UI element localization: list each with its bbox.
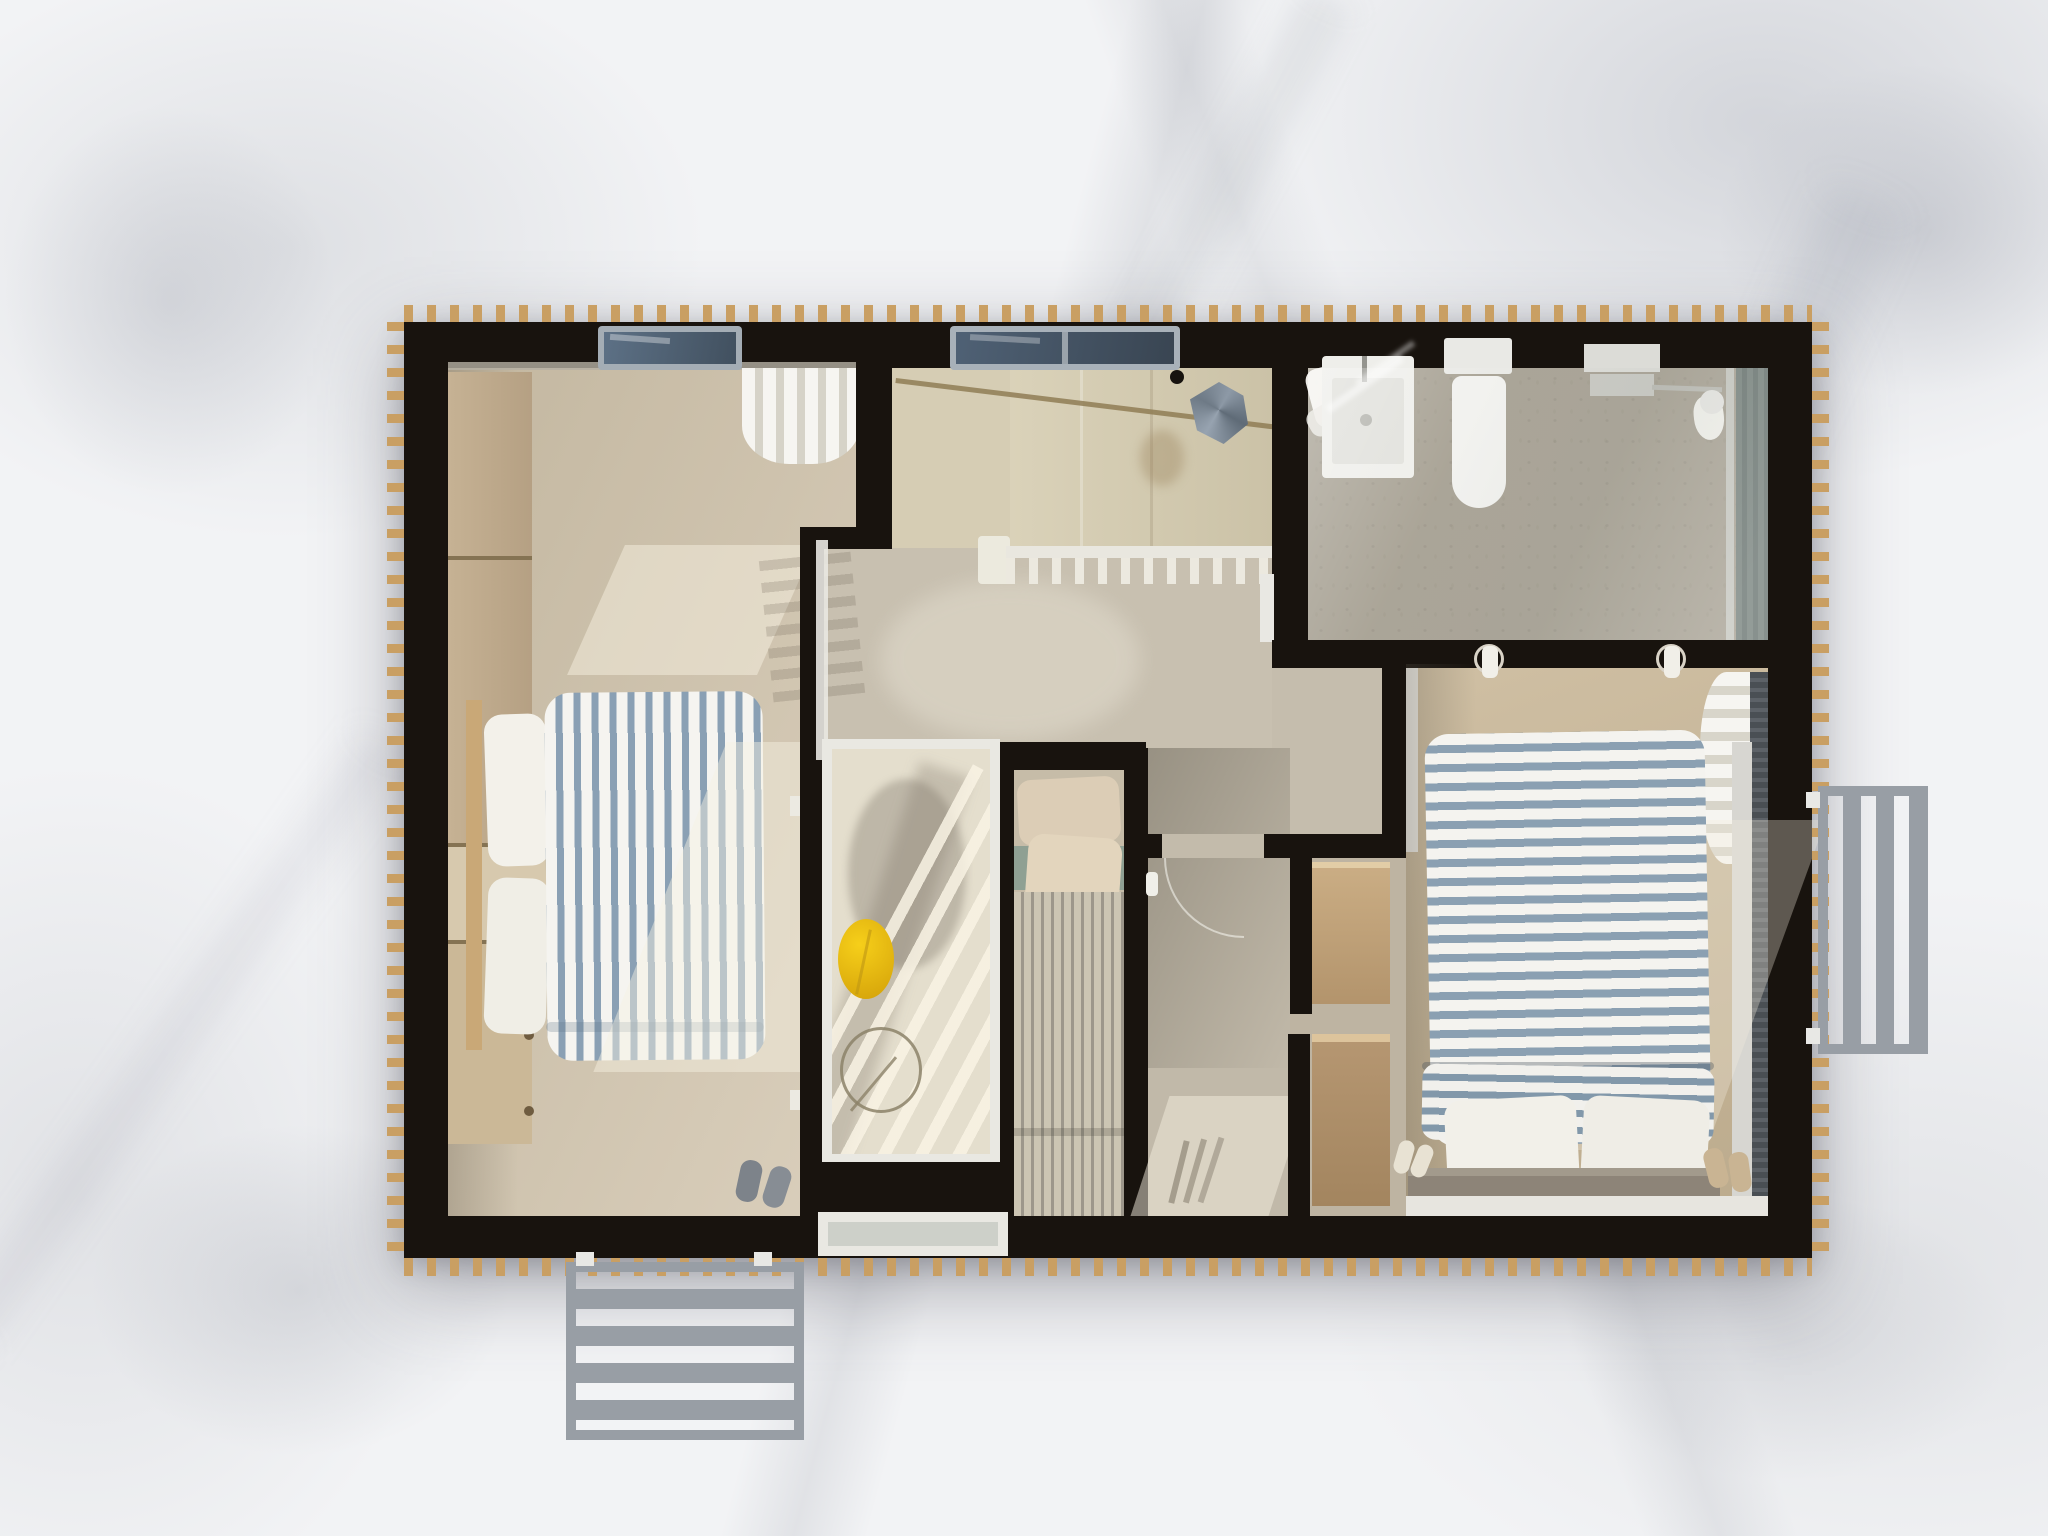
upper-closet	[1312, 862, 1390, 1004]
window-sill	[1406, 1196, 1768, 1216]
south-glass-door	[818, 1212, 1008, 1256]
bathroom-west-wall	[1272, 322, 1308, 640]
balcony-east-connector-2	[1806, 1028, 1820, 1044]
sunroom-frame	[822, 739, 1000, 1164]
wire-chair-ring	[840, 1027, 922, 1113]
bed-platform-edge	[1408, 1168, 1720, 1176]
landing-light	[880, 580, 1140, 740]
flight-smudge	[1140, 430, 1184, 486]
marble-background	[0, 0, 2048, 1536]
pillow-left-1	[483, 713, 550, 867]
balcony-south	[566, 1262, 804, 1440]
pendant-canopy-dot	[1170, 370, 1184, 384]
nook-wall-upper	[1290, 858, 1312, 1014]
hall-door-gap	[1162, 834, 1264, 858]
bedroom-door-glass	[816, 540, 828, 760]
skylight-stair-divider	[1062, 332, 1068, 364]
niche-fold	[1014, 1128, 1124, 1136]
bathroom-door-frame	[1260, 574, 1274, 642]
upper-closet-edge	[1312, 862, 1390, 868]
wardrobe-divider-1	[448, 556, 532, 560]
yellow-pouf	[838, 919, 894, 999]
bathroom-south-wall	[1272, 640, 1812, 668]
knob-2	[524, 1106, 534, 1116]
railing-band	[1006, 546, 1272, 558]
balcony-east-connector-1	[1806, 792, 1820, 808]
sconce-body-2	[1664, 646, 1680, 678]
right-bedroom-west-wall	[1382, 640, 1406, 858]
stair-fan	[892, 368, 1010, 548]
sunroom-south-wall	[822, 1162, 1000, 1216]
nook-wall-lower	[1288, 1034, 1310, 1216]
roof-hatch-left	[387, 322, 404, 1258]
fitting-2	[790, 1090, 800, 1110]
sconce-body-1	[1482, 646, 1498, 678]
bed-headboard	[466, 700, 482, 1050]
lower-closet	[1312, 1034, 1390, 1206]
flight-streak-1	[1080, 368, 1083, 548]
stair-west-wall	[856, 322, 892, 548]
railing-balusters	[1006, 558, 1272, 584]
bath-ceiling-glass	[1308, 368, 1768, 640]
pillow-left-2	[483, 877, 550, 1035]
lower-closet-edge	[1312, 1034, 1390, 1042]
curtain-left-room	[742, 368, 860, 464]
roof-hatch-top	[404, 305, 1812, 322]
balcony-east	[1818, 786, 1928, 1054]
door-handle	[1146, 872, 1158, 896]
marble-patch-nw	[0, 30, 400, 570]
floor-plan	[0, 0, 2048, 1536]
niche-bed-stripes	[1014, 892, 1124, 1216]
balcony-south-connector-1	[576, 1252, 594, 1266]
fitting-1	[790, 796, 800, 816]
balcony-south-connector-2	[754, 1252, 772, 1266]
